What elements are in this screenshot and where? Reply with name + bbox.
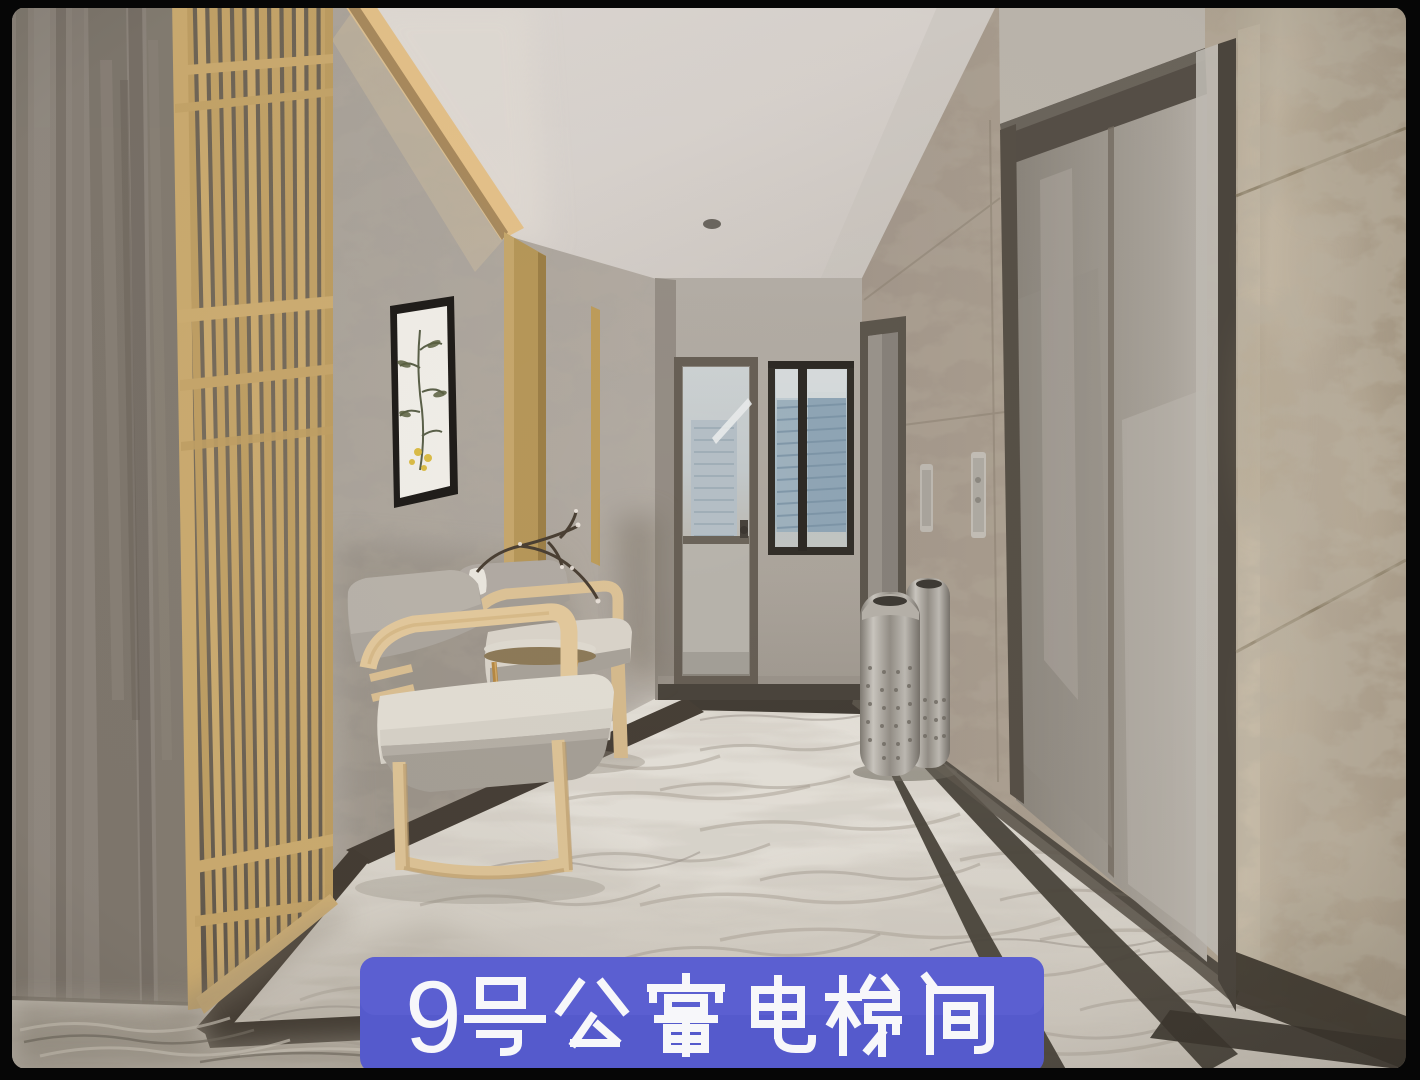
svg-text:9: 9 <box>405 960 462 1074</box>
